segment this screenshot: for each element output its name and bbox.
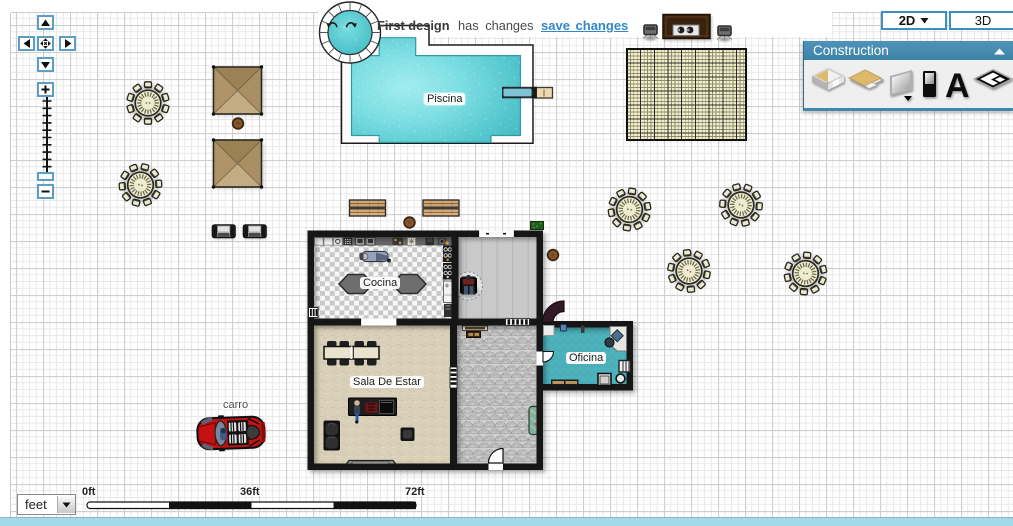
svg-text:A: A [945,67,970,105]
